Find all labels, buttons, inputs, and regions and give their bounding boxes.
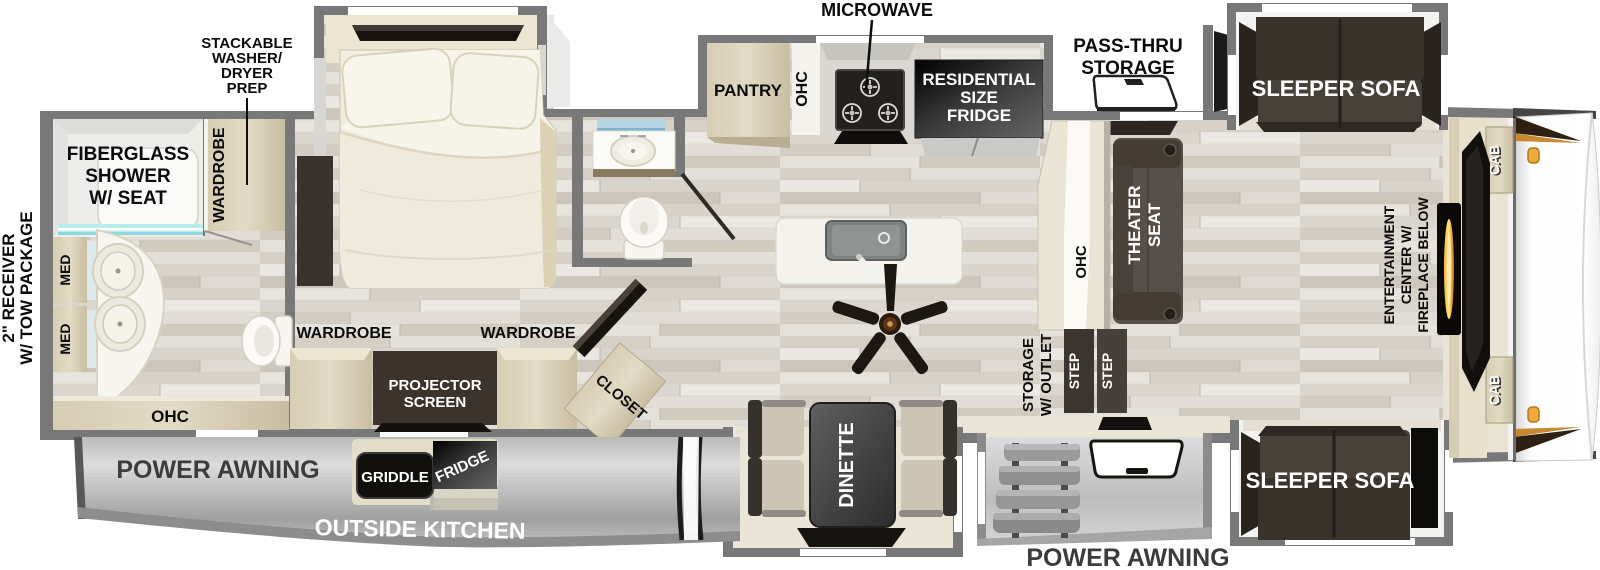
svg-text:PREP: PREP — [227, 80, 268, 97]
svg-text:DINETTE: DINETTE — [836, 422, 858, 508]
svg-text:GRIDDLE: GRIDDLE — [361, 469, 429, 486]
svg-text:THEATER: THEATER — [1125, 185, 1144, 264]
svg-text:WARDROBE: WARDROBE — [296, 325, 391, 342]
svg-text:SLEEPER SOFA: SLEEPER SOFA — [1246, 468, 1415, 493]
svg-text:OHC: OHC — [794, 71, 811, 107]
svg-text:WARDROBE: WARDROBE — [480, 325, 575, 342]
svg-text:WARDROBE: WARDROBE — [211, 127, 228, 222]
svg-text:OHC: OHC — [1073, 245, 1090, 279]
svg-text:STEP: STEP — [1099, 353, 1115, 390]
svg-text:2" RECEIVER: 2" RECEIVER — [0, 233, 18, 342]
svg-text:POWER AWNING: POWER AWNING — [116, 456, 319, 484]
svg-text:RESIDENTIAL: RESIDENTIAL — [922, 70, 1035, 89]
svg-text:SIZE: SIZE — [960, 88, 998, 107]
svg-text:FIREPLACE BELOW: FIREPLACE BELOW — [1415, 197, 1431, 333]
svg-text:W/ SEAT: W/ SEAT — [89, 188, 167, 209]
svg-text:SEAT: SEAT — [1145, 202, 1164, 247]
svg-text:PANTRY: PANTRY — [714, 81, 783, 100]
svg-text:FIBERGLASS: FIBERGLASS — [67, 144, 189, 165]
svg-text:PASS-THRU: PASS-THRU — [1073, 36, 1182, 57]
svg-text:OHC: OHC — [151, 407, 189, 426]
svg-text:W/ OUTLET: W/ OUTLET — [1038, 334, 1055, 417]
svg-text:STEP: STEP — [1066, 353, 1082, 390]
svg-text:FRIDGE: FRIDGE — [947, 106, 1011, 125]
svg-text:PROJECTOR: PROJECTOR — [388, 377, 481, 394]
svg-text:CAB: CAB — [1486, 375, 1502, 405]
svg-text:SLEEPER SOFA: SLEEPER SOFA — [1252, 76, 1421, 101]
svg-text:MICROWAVE: MICROWAVE — [821, 0, 933, 20]
svg-text:SCREEN: SCREEN — [404, 394, 467, 411]
svg-text:W/ TOW PACKAGE: W/ TOW PACKAGE — [17, 211, 36, 364]
svg-text:CENTER W/: CENTER W/ — [1398, 226, 1414, 305]
svg-text:OUTSIDE KITCHEN: OUTSIDE KITCHEN — [315, 514, 526, 544]
svg-text:MED: MED — [57, 323, 73, 354]
svg-text:SHOWER: SHOWER — [85, 166, 171, 187]
svg-text:ENTERTAINMENT: ENTERTAINMENT — [1381, 205, 1397, 324]
svg-text:POWER AWNING: POWER AWNING — [1026, 544, 1229, 570]
svg-text:STORAGE: STORAGE — [1020, 338, 1037, 412]
svg-text:MED: MED — [57, 254, 73, 285]
